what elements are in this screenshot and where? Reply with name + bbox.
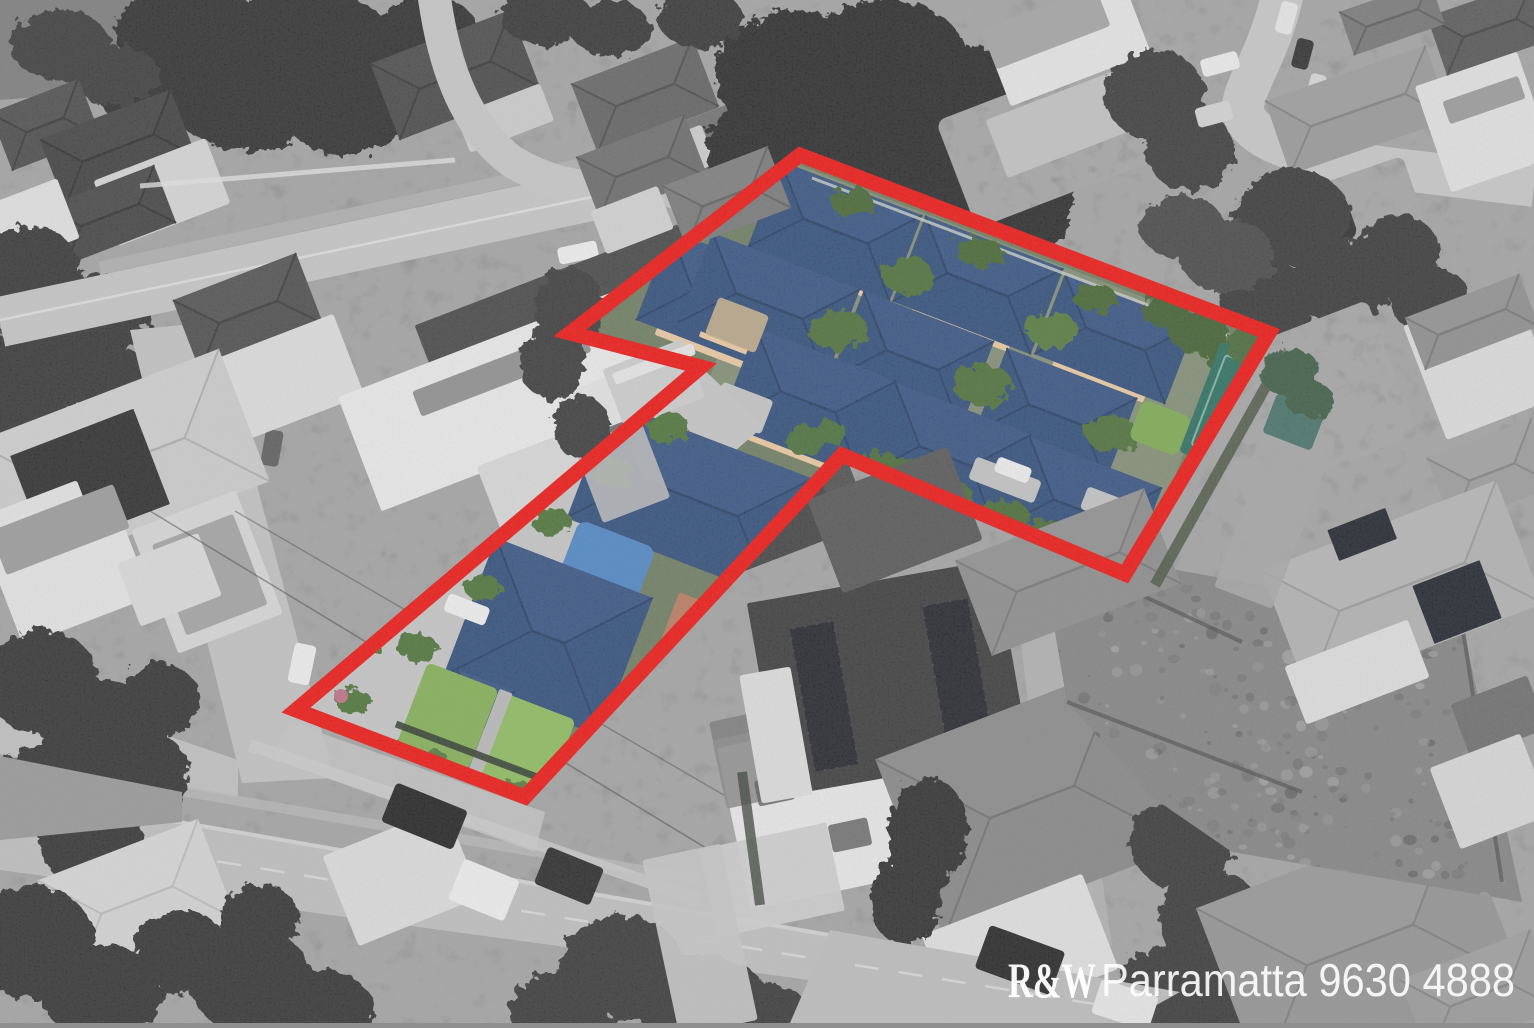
svg-text:Parramatta 9630 4888: Parramatta 9630 4888	[1101, 954, 1515, 1006]
svg-text:R&W: R&W	[1008, 952, 1096, 1008]
